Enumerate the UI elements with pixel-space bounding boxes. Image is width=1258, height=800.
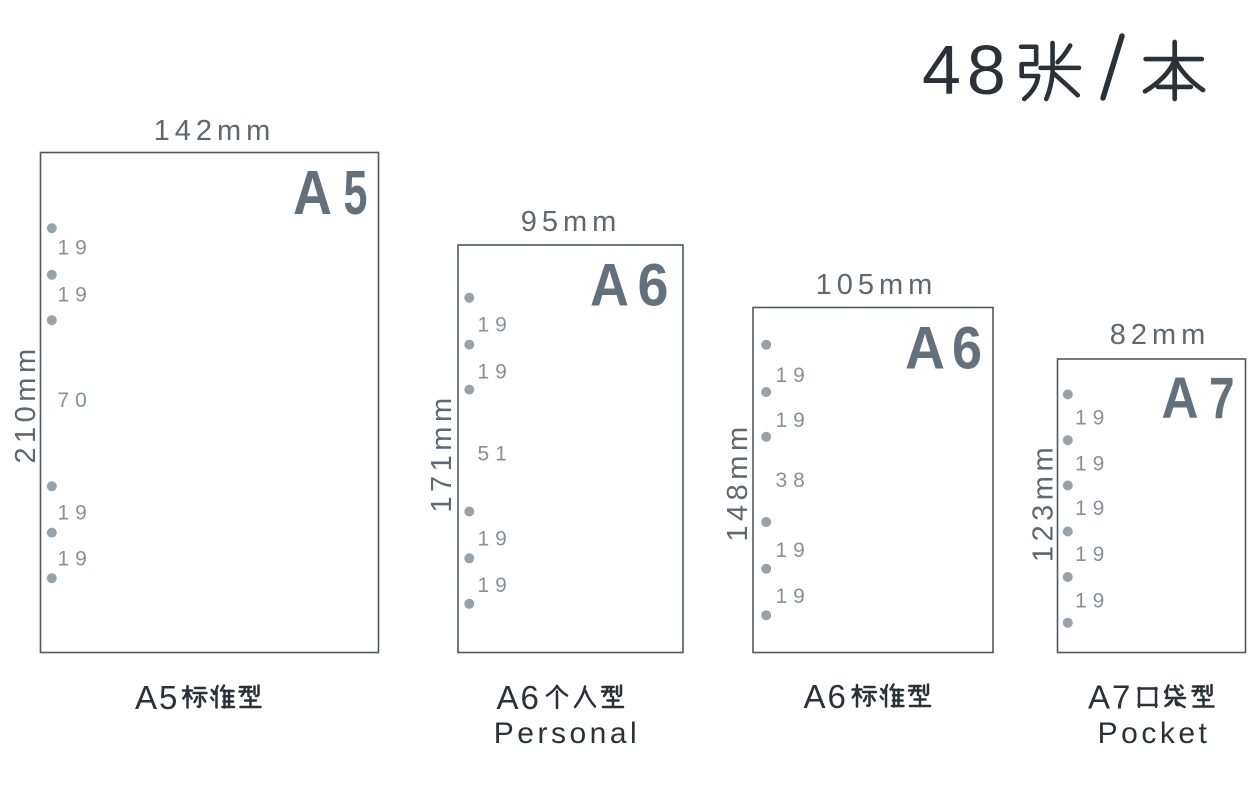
svg-text:19: 19 (478, 361, 513, 384)
svg-text:19: 19 (776, 409, 811, 432)
svg-text:38: 38 (776, 469, 811, 492)
svg-text:19: 19 (58, 548, 93, 571)
svg-text:19: 19 (478, 314, 513, 337)
svg-text:19: 19 (1075, 497, 1110, 520)
svg-text:19: 19 (478, 528, 513, 551)
svg-text:19: 19 (58, 284, 93, 307)
svg-text:142mm: 142mm (154, 115, 276, 147)
svg-text:70: 70 (58, 389, 93, 412)
svg-text:19: 19 (1075, 543, 1110, 566)
svg-text:7: 7 (1209, 366, 1235, 431)
svg-text:A: A (293, 159, 332, 228)
svg-text:A7: A7 (1088, 679, 1132, 716)
svg-text:105mm: 105mm (816, 269, 938, 301)
svg-text:82mm: 82mm (1110, 319, 1211, 351)
svg-text:Personal: Personal (494, 717, 640, 750)
svg-text:A6: A6 (804, 678, 848, 715)
svg-text:51: 51 (478, 443, 513, 466)
svg-text:171mm: 171mm (426, 393, 458, 512)
svg-text:Pocket: Pocket (1098, 717, 1211, 750)
svg-text:19: 19 (58, 501, 93, 524)
svg-text:6: 6 (638, 252, 669, 319)
svg-text:19: 19 (776, 585, 811, 608)
svg-text:A5: A5 (135, 679, 179, 716)
svg-text:95mm: 95mm (521, 206, 622, 238)
svg-text:48: 48 (922, 31, 1012, 109)
svg-text:5: 5 (344, 159, 368, 228)
svg-text:A: A (590, 252, 629, 319)
svg-text:19: 19 (58, 237, 93, 260)
svg-text:123mm: 123mm (1028, 443, 1060, 562)
svg-text:19: 19 (1075, 453, 1110, 476)
svg-text:A: A (905, 315, 945, 382)
svg-text:A6: A6 (497, 679, 541, 716)
svg-text:19: 19 (478, 574, 513, 597)
svg-text:6: 6 (952, 315, 982, 382)
svg-text:19: 19 (1075, 407, 1110, 430)
svg-text:148mm: 148mm (722, 422, 754, 541)
svg-text:210mm: 210mm (10, 344, 42, 463)
svg-text:19: 19 (776, 539, 811, 562)
svg-text:19: 19 (1075, 590, 1110, 613)
svg-text:A: A (1162, 366, 1199, 431)
svg-text:19: 19 (776, 364, 811, 387)
